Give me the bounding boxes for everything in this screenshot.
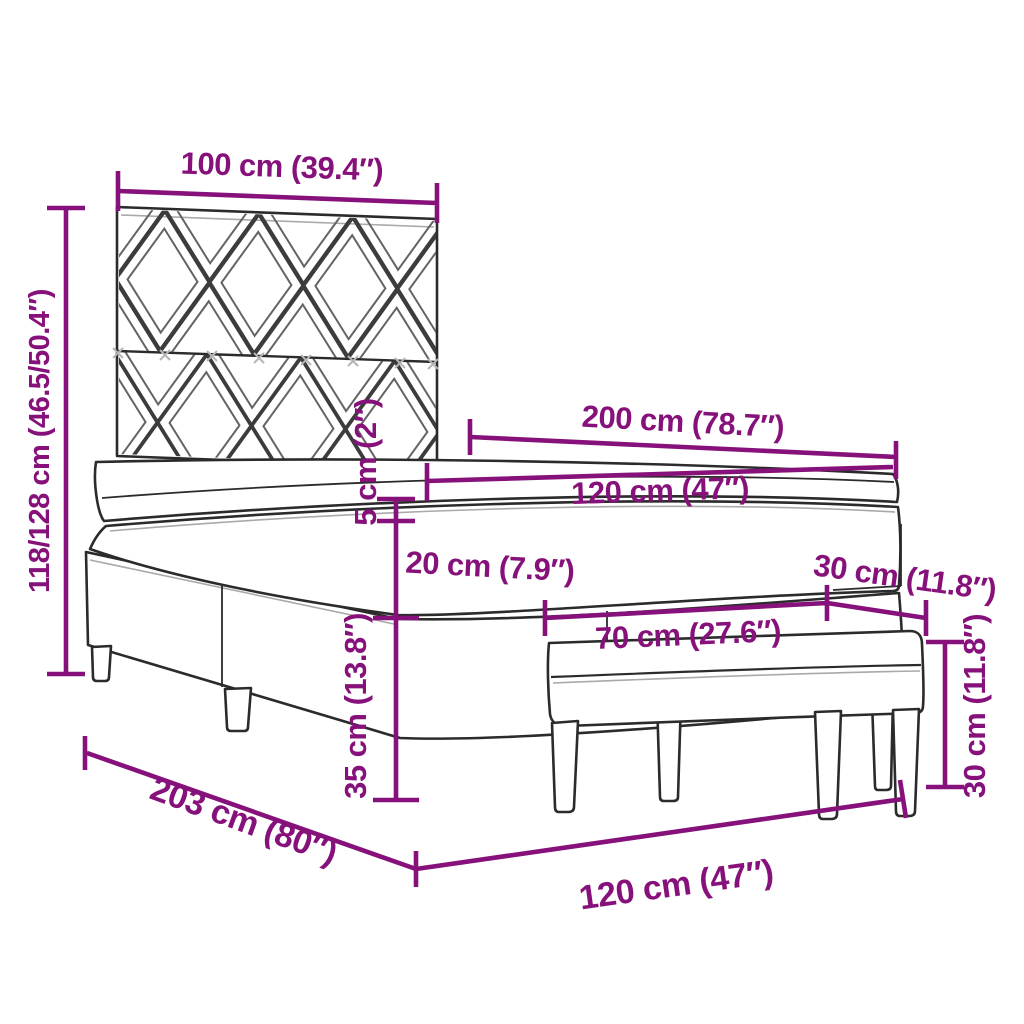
dim-label-bed-height: 118/128 cm (46.5/50.4″): [24, 289, 56, 593]
diagram-canvas: 100 cm (39.4″) 118/128 cm (46.5/50.4″) 2…: [0, 0, 1024, 1024]
bench-drawing: [548, 631, 924, 819]
bench-leg-front-middle: [815, 711, 841, 819]
bench-leg-front-left: [552, 721, 578, 812]
dim-label-bed-length: 200 cm (78.7″): [581, 399, 785, 445]
dim-label-headboard-width: 100 cm (39.4″): [180, 145, 384, 187]
dim-label-topper-thickness: 5 cm (2″): [348, 398, 383, 526]
bed-dimension-diagram: 100 cm (39.4″) 118/128 cm (46.5/50.4″) 2…: [0, 0, 1024, 1024]
dim-label-bed-width: 120 cm (47″): [577, 853, 776, 918]
dim-label-base-height: 35 cm (13.8″): [338, 613, 373, 799]
dim-label-mattress-width: 120 cm (47″): [571, 470, 750, 511]
bed-leg-middle: [225, 688, 251, 731]
bed-leg-head: [92, 646, 111, 681]
dim-label-bench-height: 30 cm (11.8″): [957, 614, 992, 798]
dim-label-frame-length: 203 cm (80″): [145, 770, 342, 873]
